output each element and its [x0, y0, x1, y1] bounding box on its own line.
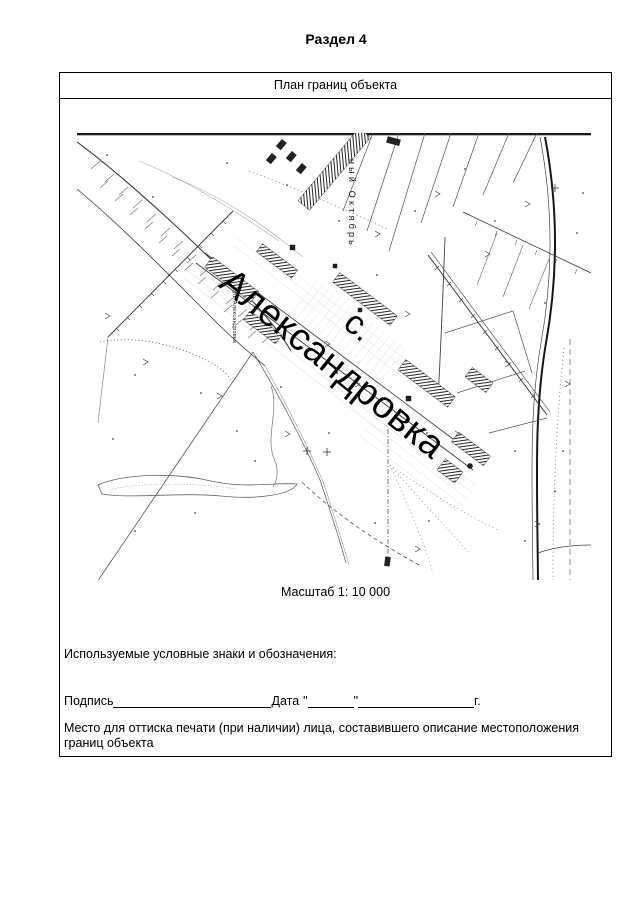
map-area: ный Октябрь ул. Александровка с. Алексан… — [77, 133, 591, 580]
legend-label: Используемые условные знаки и обозначени… — [64, 647, 337, 661]
map-scan-edge — [77, 133, 591, 135]
scale-label: Масштаб 1: 10 000 — [60, 585, 611, 599]
plan-panel: План границ объекта — [59, 72, 612, 757]
year-suffix: г. — [474, 694, 481, 708]
page-title: Раздел 4 — [59, 31, 613, 47]
date-year-blank-line — [358, 693, 474, 708]
street-label: ный Октябрь — [347, 159, 357, 248]
date-quote-open: " — [299, 694, 307, 708]
signature-blank-line — [113, 693, 271, 708]
boundary-plan-map: ный Октябрь ул. Александровка с. Алексан… — [77, 133, 591, 580]
date-day-blank-line — [308, 693, 354, 708]
panel-header: План границ объекта — [60, 73, 611, 99]
village-label-name: Александровка — [212, 260, 454, 467]
document-page: { "page": { "title": "Раздел 4" }, "pane… — [0, 0, 640, 905]
stamp-note: Место для оттиска печати (при наличии) л… — [64, 721, 604, 752]
signature-row: ПодписьДата""г. — [64, 693, 481, 708]
signature-label: Подпись — [64, 694, 113, 708]
date-label: Дата — [271, 694, 299, 708]
